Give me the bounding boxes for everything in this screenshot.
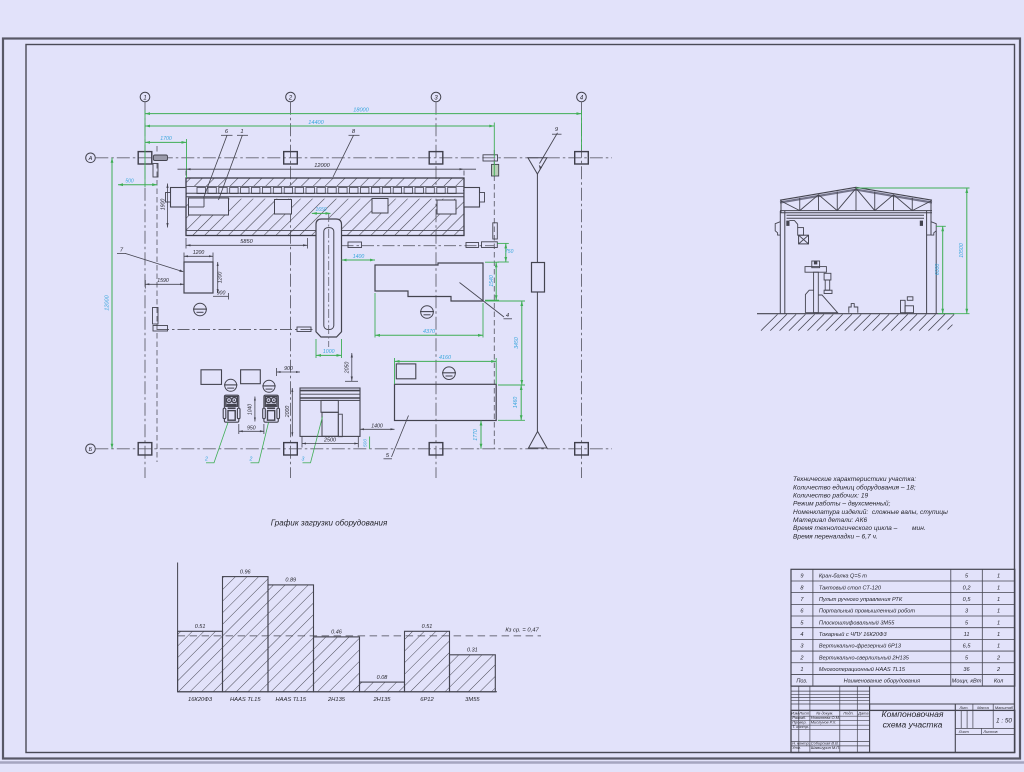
svg-text:Плоскошлифовальный 3М55: Плоскошлифовальный 3М55 <box>819 619 895 626</box>
svg-text:0,2: 0,2 <box>963 585 972 591</box>
svg-text:4160: 4160 <box>439 355 451 361</box>
svg-text:11: 11 <box>964 632 970 638</box>
svg-text:Портальный промышленный робот: Портальный промышленный робот <box>819 608 915 615</box>
svg-text:График загрузки оборудования: График загрузки оборудования <box>271 519 388 528</box>
svg-text:1: 1 <box>997 609 1000 615</box>
svg-text:Масса: Масса <box>977 705 989 710</box>
svg-text:0.96: 0.96 <box>240 569 252 575</box>
svg-text:Масштаб: Масштаб <box>995 705 1014 710</box>
svg-text:Б: Б <box>89 447 93 453</box>
svg-text:18000: 18000 <box>353 107 369 113</box>
svg-text:0.08: 0.08 <box>377 675 389 681</box>
svg-text:Кран-балка Q=5 т: Кран-балка Q=5 т <box>819 574 867 580</box>
svg-text:1 : 50: 1 : 50 <box>996 718 1012 725</box>
svg-text:Время технологического цикла –: Время технологического цикла – мин. <box>793 525 926 532</box>
svg-text:12000: 12000 <box>105 294 111 310</box>
svg-text:схема участка: схема участка <box>883 720 943 730</box>
svg-text:4370: 4370 <box>423 329 435 335</box>
svg-text:1040: 1040 <box>248 404 254 415</box>
svg-text:4: 4 <box>506 313 509 319</box>
svg-text:HAAS TL15: HAAS TL15 <box>230 697 261 703</box>
svg-text:Пульт ручного управления РТК: Пульт ручного управления РТК <box>819 597 903 603</box>
svg-text:Утв.: Утв. <box>792 745 801 750</box>
svg-text:Режим работы – двухсменный;: Режим работы – двухсменный; <box>793 500 891 508</box>
svg-text:Время переналадки – 6,7 ч.: Время переналадки – 6,7 ч. <box>793 532 878 540</box>
svg-text:Номенклатура изделий: сложные: Номенклатура изделий: сложные валы, ступ… <box>793 508 948 516</box>
svg-text:3450: 3450 <box>514 337 520 349</box>
svg-text:6,5: 6,5 <box>963 644 972 650</box>
svg-text:Лист: Лист <box>958 729 970 734</box>
svg-text:750: 750 <box>505 249 514 255</box>
svg-text:2Н135: 2Н135 <box>372 697 391 703</box>
svg-text:Количество единиц оборудования: Количество единиц оборудования – 18; <box>793 483 916 491</box>
svg-text:36: 36 <box>963 667 970 673</box>
svg-text:Количество рабочих: 19: Количество рабочих: 19 <box>793 492 869 500</box>
svg-text:900: 900 <box>217 291 226 297</box>
svg-text:3М55: 3М55 <box>465 697 480 703</box>
svg-text:12000: 12000 <box>314 163 330 169</box>
svg-text:Вертикально-фрезерный 6Р13: Вертикально-фрезерный 6Р13 <box>819 643 902 650</box>
svg-text:Многооперационный HAAS TL15: Многооперационный HAAS TL15 <box>819 666 906 673</box>
svg-text:Технические характеристики уча: Технические характеристики участка: <box>793 476 916 483</box>
svg-text:2Н135: 2Н135 <box>327 697 346 703</box>
svg-text:1400: 1400 <box>353 254 365 260</box>
svg-text:950: 950 <box>247 425 256 431</box>
svg-text:500: 500 <box>362 439 368 447</box>
svg-text:Листов: Листов <box>982 729 997 734</box>
svg-text:2: 2 <box>204 457 208 463</box>
svg-text:16К20Ф3: 16К20Ф3 <box>188 697 213 703</box>
svg-text:1200: 1200 <box>217 272 223 284</box>
svg-text:2: 2 <box>249 457 253 463</box>
svg-text:1770: 1770 <box>473 429 479 441</box>
svg-text:Т. контр.: Т. контр. <box>792 724 809 729</box>
svg-text:2000: 2000 <box>285 406 291 419</box>
svg-text:Подп.: Подп. <box>843 711 853 716</box>
svg-text:5850: 5850 <box>240 239 253 245</box>
svg-text:1: 1 <box>800 667 803 673</box>
svg-text:10500: 10500 <box>959 243 965 258</box>
svg-text:2500: 2500 <box>323 438 336 444</box>
svg-text:0.31: 0.31 <box>467 648 478 654</box>
svg-text:1: 1 <box>997 574 1000 580</box>
svg-text:900: 900 <box>284 366 293 372</box>
svg-text:Компоновочная: Компоновочная <box>882 709 944 719</box>
svg-text:1000: 1000 <box>323 349 335 355</box>
svg-text:Тактовый стол СТ-120: Тактовый стол СТ-120 <box>819 584 882 591</box>
svg-text:0.51: 0.51 <box>422 624 433 630</box>
svg-text:1: 1 <box>997 632 1000 638</box>
svg-text:Лит.: Лит. <box>958 705 968 710</box>
svg-text:1400: 1400 <box>371 423 383 429</box>
svg-text:HAAS TL15: HAAS TL15 <box>275 697 306 703</box>
svg-text:А: А <box>88 156 93 162</box>
svg-text:1: 1 <box>143 95 146 101</box>
svg-text:Дата: Дата <box>857 711 869 716</box>
svg-text:0.51: 0.51 <box>195 624 206 630</box>
svg-text:Шамшурин М.П.: Шамшурин М.П. <box>811 745 840 750</box>
svg-text:6Р12: 6Р12 <box>420 697 434 703</box>
svg-text:Кол: Кол <box>994 679 1004 685</box>
svg-text:4: 4 <box>800 632 803 638</box>
svg-text:2: 2 <box>288 95 293 101</box>
svg-text:Мощн, кВт: Мощн, кВт <box>952 679 982 685</box>
svg-text:1: 1 <box>997 585 1000 591</box>
svg-text:1200: 1200 <box>193 250 205 256</box>
svg-text:Материал детали: АК6: Материал детали: АК6 <box>793 516 867 524</box>
svg-text:2050: 2050 <box>345 362 351 375</box>
svg-text:1: 1 <box>997 620 1000 626</box>
svg-text:6000: 6000 <box>935 264 941 276</box>
svg-text:1590: 1590 <box>157 278 169 284</box>
svg-text:1460: 1460 <box>513 397 519 409</box>
svg-text:1650: 1650 <box>315 207 326 213</box>
svg-text:1540: 1540 <box>489 275 495 287</box>
svg-text:Вертикально-сверлильный 2Н135: Вертикально-сверлильный 2Н135 <box>819 654 910 661</box>
svg-text:Токарный с ЧПУ 16К20Ф3: Токарный с ЧПУ 16К20Ф3 <box>819 631 888 638</box>
svg-text:Мислунов Р.Х.: Мислунов Р.Х. <box>811 720 837 725</box>
svg-text:1: 1 <box>997 644 1000 650</box>
svg-text:9: 9 <box>800 574 803 580</box>
svg-text:3: 3 <box>302 457 305 463</box>
svg-text:1: 1 <box>240 129 243 135</box>
svg-text:Наименование оборудования: Наименование оборудования <box>844 679 921 685</box>
svg-text:Поз.: Поз. <box>796 679 807 685</box>
svg-text:0.89: 0.89 <box>285 578 296 584</box>
svg-text:500: 500 <box>125 179 134 185</box>
svg-text:1700: 1700 <box>160 136 172 142</box>
svg-text:0.46: 0.46 <box>331 630 343 636</box>
svg-text:1900: 1900 <box>160 199 166 211</box>
svg-text:1: 1 <box>997 597 1000 603</box>
svg-text:0,5: 0,5 <box>963 597 972 603</box>
svg-text:14400: 14400 <box>308 120 324 126</box>
svg-text:Кз ср. = 0,47: Кз ср. = 0,47 <box>505 628 539 634</box>
